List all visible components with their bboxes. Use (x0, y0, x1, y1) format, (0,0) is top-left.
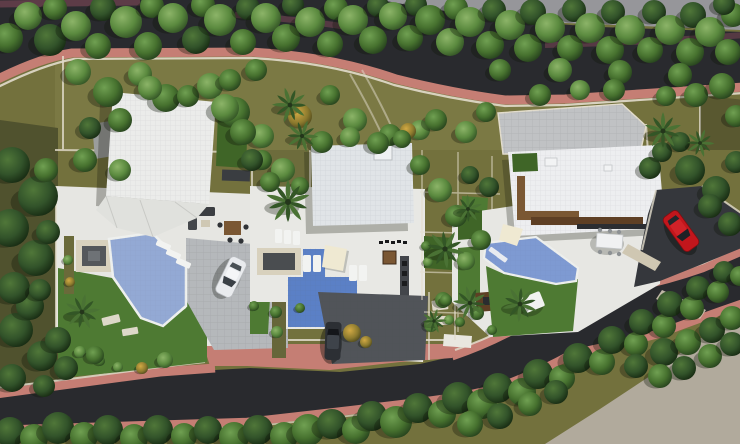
tree (34, 158, 58, 182)
top-road-far-sidewalk (0, 2, 140, 4)
tree (45, 327, 71, 353)
tree (249, 301, 259, 311)
tree (33, 375, 55, 397)
tree (367, 132, 389, 154)
tree (548, 58, 572, 82)
tree (295, 303, 305, 313)
tree (455, 121, 477, 143)
tree (241, 149, 263, 171)
tree (652, 314, 676, 338)
tree (134, 32, 162, 60)
tree (518, 392, 542, 416)
right-villa-courtyard-lawn (512, 153, 538, 172)
tree (675, 155, 705, 185)
tree (624, 354, 648, 378)
tree (684, 83, 708, 107)
tree (271, 326, 283, 338)
tree (410, 155, 430, 175)
tree (624, 332, 648, 356)
tree (340, 127, 360, 147)
tree (393, 130, 411, 148)
tree (489, 59, 511, 81)
tree (360, 336, 372, 348)
tree (487, 325, 497, 335)
tree (211, 94, 239, 122)
tree (113, 362, 123, 372)
right-villa-roof-unit-2 (604, 165, 612, 171)
tree (65, 59, 91, 85)
tree (709, 73, 735, 99)
tree (359, 26, 387, 54)
tree (219, 69, 241, 91)
tree (471, 230, 491, 250)
tree (65, 277, 75, 287)
tree (93, 77, 123, 107)
tree (457, 252, 475, 270)
tree (479, 177, 499, 197)
tree (14, 2, 42, 30)
tree (158, 3, 188, 33)
tree (707, 281, 729, 303)
tree (656, 86, 676, 106)
tree (461, 166, 479, 184)
tree (457, 411, 483, 437)
tree (570, 80, 590, 100)
tree (476, 102, 496, 122)
tree (544, 380, 568, 404)
tree (79, 117, 101, 139)
middle-villa-shade-sail (322, 245, 347, 271)
tree (603, 79, 625, 101)
dark-car-windshield (327, 329, 339, 335)
tree (73, 148, 97, 172)
tree (487, 403, 513, 429)
tree (18, 240, 54, 276)
tree (317, 31, 343, 57)
tree (230, 119, 256, 145)
tree (428, 178, 452, 202)
middle-villa-roof-texture (311, 143, 414, 226)
tree (529, 84, 551, 106)
tree (440, 294, 452, 306)
tree (63, 255, 73, 265)
tree (715, 39, 740, 65)
tree (136, 362, 148, 374)
tree (138, 76, 162, 100)
tree (85, 33, 111, 59)
tree (29, 279, 51, 301)
tree (668, 63, 692, 87)
tree (108, 108, 132, 132)
middle-villa-lounge-rug (257, 248, 301, 275)
tree (204, 4, 236, 36)
tree (698, 194, 722, 218)
tree (455, 317, 465, 327)
tree (672, 356, 696, 380)
site-plan-render: Aerial top-down 3D architectural renderi… (0, 0, 740, 444)
tree (245, 59, 267, 81)
scene-svg: Aerial top-down 3D architectural renderi… (0, 0, 740, 444)
tree (311, 131, 333, 153)
tree (260, 172, 280, 192)
tree (648, 364, 672, 388)
tree (343, 324, 361, 342)
tree (36, 220, 60, 244)
dark-car-roof (327, 335, 339, 349)
tree (86, 346, 104, 364)
middle-villa-stair (400, 256, 409, 298)
tree (425, 109, 447, 131)
tree (157, 352, 173, 368)
right-villa-roof-unit-1 (545, 158, 557, 166)
tree (230, 29, 256, 55)
tree (320, 85, 340, 105)
tree (54, 356, 78, 380)
right-villa-top-driveway-texture (498, 104, 646, 154)
tree (109, 159, 131, 181)
tree (270, 306, 282, 318)
left-villa-lounge-rug (76, 240, 112, 272)
middle-villa-wood-box (383, 251, 396, 264)
